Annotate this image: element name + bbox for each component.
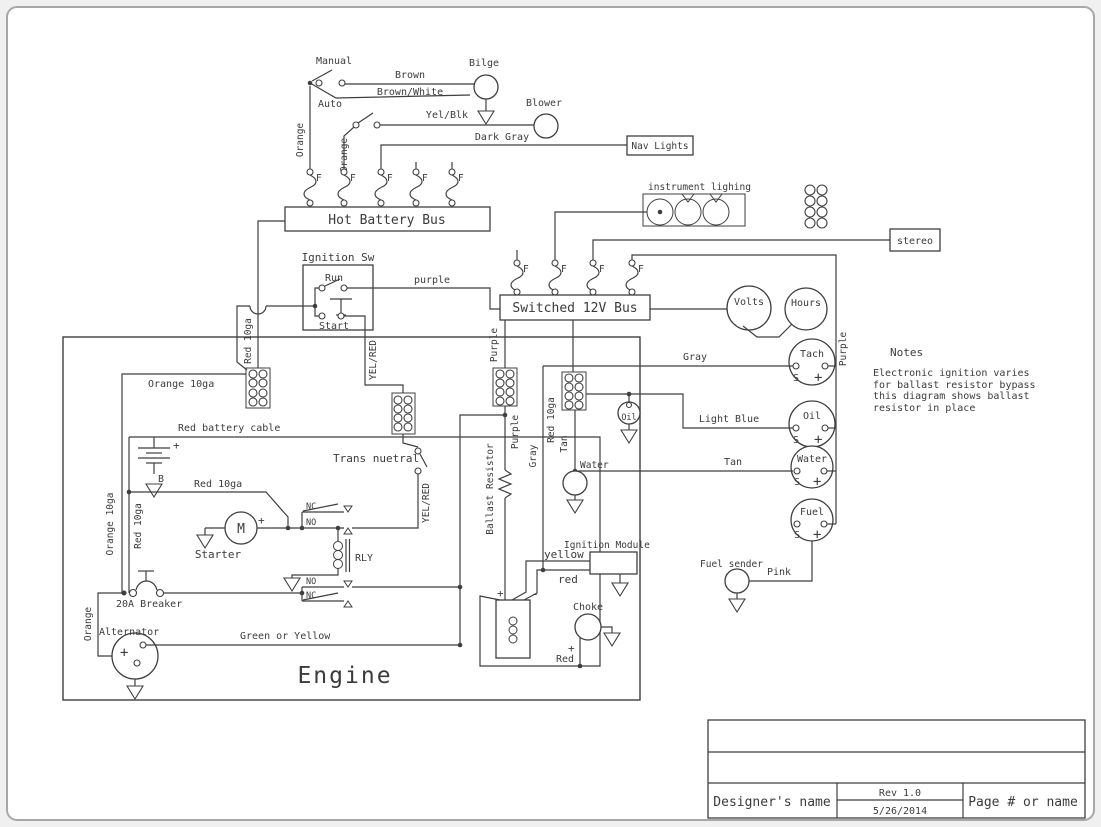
label-choke: Choke [573, 602, 603, 613]
label-no: NO [306, 518, 316, 528]
label-red-10ga-vert: Red 10ga [133, 503, 144, 549]
fuse-label: F [599, 264, 605, 275]
revision: Rev 1.0 [879, 788, 921, 799]
gauge-plus-terminal: + [813, 474, 821, 490]
fuse-label: F [387, 173, 393, 184]
label-orange-10ga: Orange 10ga [148, 379, 214, 390]
label-yel-red-2: YEL/RED [421, 483, 432, 523]
coil-minus: - [531, 587, 539, 602]
label-alternator: Alternator [99, 627, 159, 638]
fuse-label: F [458, 173, 464, 184]
label-yel-red-1: YEL/RED [368, 340, 379, 380]
label-starter: Starter [195, 548, 242, 561]
hours-meter [785, 288, 827, 330]
label-fuel-gauge: Fuel [800, 507, 824, 518]
label-manual: Manual [316, 56, 352, 67]
revision-date: 5/26/2014 [873, 806, 927, 817]
label-no: NO [306, 577, 316, 587]
label-red-10ga-starter: Red 10ga [194, 479, 242, 490]
wiring-diagram: Manual Auto Brown Brown/White Bilge Oran… [0, 0, 1101, 827]
coil-plus: + [497, 587, 504, 600]
label-purple-right: Purple [838, 332, 849, 367]
label-oil-sender: Oil [621, 413, 636, 423]
label-gray-vert: Gray [528, 444, 539, 467]
label-red-battery-cable: Red battery cable [178, 423, 280, 434]
label-green-or-yellow: Green or Yellow [240, 631, 331, 642]
stereo: stereo [890, 229, 940, 251]
schematic-page: Manual Auto Brown Brown/White Bilge Oran… [0, 0, 1101, 827]
fuse-label: F [523, 264, 529, 275]
label-dark-gray: Dark Gray [475, 132, 529, 143]
label-brown-white: Brown/White [377, 87, 443, 98]
label-breaker: 20A Breaker [116, 599, 182, 610]
label-auto: Auto [318, 99, 342, 110]
label-tan-vert: Tan [559, 435, 570, 452]
label-stereo: stereo [897, 236, 933, 247]
notes-line: this diagram shows ballast [873, 391, 1030, 402]
label-gray-wire: Gray [683, 352, 707, 363]
fuse-label: F [316, 173, 322, 184]
notes-line: for ballast resistor bypass [873, 380, 1036, 391]
label-red-10ga-bus: Red 10ga [243, 318, 254, 364]
notes-title: Notes [890, 346, 923, 359]
label-water-sender: Water [580, 460, 609, 471]
label-start: Start [319, 321, 349, 332]
label-fuel-sender: Fuel sender [700, 559, 763, 570]
gauge-plus-terminal: + [813, 527, 821, 543]
label-rly: RLY [355, 553, 373, 564]
label-pink-wire: Pink [767, 567, 791, 578]
battery-plus: + [173, 439, 180, 452]
blower [534, 114, 558, 138]
bilge-pump [474, 75, 498, 99]
label-red-10ga-conn4: Red 10ga [546, 397, 557, 443]
label-brown: Brown [395, 70, 425, 81]
label-nc: NC [306, 591, 316, 601]
volts-meter [727, 286, 771, 330]
label-blower: Blower [526, 98, 562, 109]
label-yel-blk: Yel/Blk [426, 110, 468, 121]
label-light-blue-wire: Light Blue [699, 414, 759, 425]
gauge-s-terminal: S [794, 477, 800, 488]
page-name: Page # or name [968, 795, 1078, 810]
title-block: Designer's name Rev 1.0 5/26/2014 Page #… [708, 720, 1085, 818]
label-tach: Tach [800, 349, 824, 360]
alternator-plus: + [120, 645, 128, 661]
label-water-gauge: Water [797, 454, 827, 465]
label-orange-10ga-vert: Orange 10ga [105, 493, 116, 556]
label-oil-gauge: Oil [803, 411, 821, 422]
notes-line: Electronic ignition varies [873, 368, 1030, 379]
designer-name: Designer's name [713, 795, 831, 810]
fuse-label: F [422, 173, 428, 184]
label-bilge: Bilge [469, 58, 499, 69]
label-ignition-sw: Ignition Sw [302, 251, 375, 264]
starter-plus: + [258, 514, 265, 527]
label-orange-2: Orange [339, 138, 350, 173]
gauge-s-terminal: S [793, 373, 799, 384]
label-yellow-wire: yellow [544, 548, 584, 561]
label-purple-wire: purple [414, 275, 450, 286]
fuse-label: F [638, 264, 644, 275]
label-trans-neutral: Trans nuetral [333, 452, 419, 465]
fuse-label: F [561, 264, 567, 275]
label-red-cap: Red [556, 654, 574, 665]
fuse-label: F [350, 173, 356, 184]
label-purple-conn3: Purple [489, 328, 500, 363]
label-orange-1: Orange [295, 123, 306, 158]
label-purple-down: Purple [510, 415, 521, 450]
label-hours: Hours [791, 298, 821, 309]
gauge-plus-terminal: + [814, 370, 822, 386]
fuel-sender [725, 569, 749, 593]
label-ballast: Ballast Resistor [485, 443, 496, 535]
label-nav-lights: Nav Lights [631, 141, 688, 152]
label-instrument-lighting: instrument lighing [648, 182, 751, 193]
label-tan-wire: Tan [724, 457, 742, 468]
label-engine: Engine [297, 663, 392, 689]
label-hot-battery-bus: Hot Battery Bus [328, 213, 445, 228]
label-red-wire: red [558, 573, 578, 586]
battery-b: B [158, 474, 164, 485]
label-nc: NC [306, 502, 316, 512]
starter-m: M [237, 522, 245, 537]
label-switched-bus: Switched 12V Bus [512, 301, 637, 316]
notes-line: resistor in place [873, 403, 975, 414]
gauge-s-terminal: S [793, 435, 799, 446]
gauge-s-terminal: S [794, 530, 800, 541]
label-volts: Volts [734, 297, 764, 308]
label-orange-alt: Orange [83, 607, 94, 642]
